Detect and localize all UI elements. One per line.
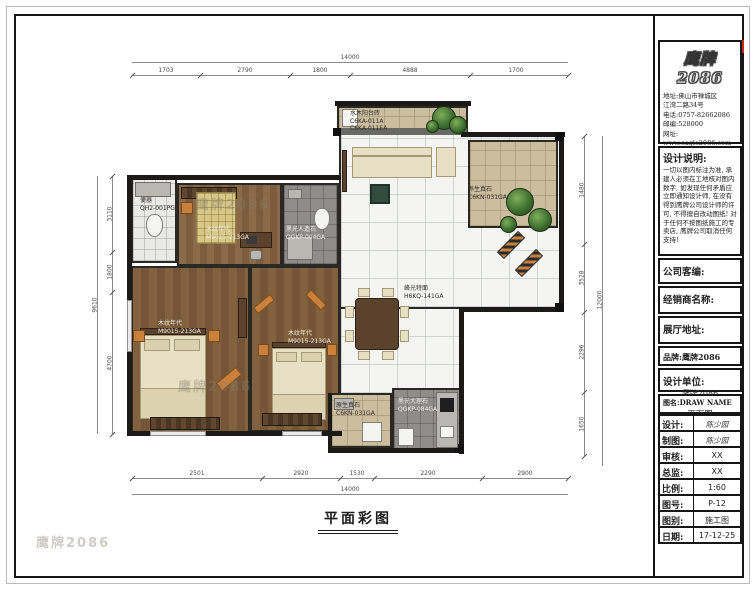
design-notes-box: 设计说明: 一切以图内标注为准, 承建人必须在工地核对图内数字, 如发现任何矛盾…	[658, 146, 742, 256]
tea-table	[370, 184, 390, 204]
material-label: 峰光特面 H6KQ-141GA	[404, 285, 444, 300]
wall	[559, 132, 564, 312]
drawing-sheet: 水木阳台砖 C6KA-011A C6KA-011EA 便器 QH2-001PGA…	[0, 0, 756, 590]
logo-box: 鹰牌2086 地址:佛山市禅城区 江湾二路34号 电话:0757-8266208…	[658, 40, 742, 144]
chair	[345, 330, 354, 342]
chair	[250, 250, 262, 260]
dim-value: 2501	[189, 470, 204, 477]
dim-line	[132, 62, 568, 63]
nightstand	[327, 344, 337, 356]
dim-value: 4700	[107, 355, 114, 370]
wall	[335, 101, 471, 106]
material-label: 黑光大理石 QGKP-084GA	[398, 398, 437, 413]
dim-value: 12000	[597, 290, 604, 309]
design-notes-title: 设计说明:	[663, 150, 737, 165]
table-row: 日期: 17-12-25	[658, 526, 742, 544]
window	[150, 431, 206, 436]
chair	[382, 288, 394, 297]
dim-value: 2296	[579, 344, 586, 359]
dim-value: 4888	[402, 67, 417, 74]
plant-icon	[528, 208, 552, 232]
kitchen-sink	[440, 426, 454, 438]
brand-logo: 鹰牌2086	[663, 48, 737, 87]
table-row: 图别: 施工图	[658, 510, 742, 528]
dealer-name-box: 经销商名称:	[658, 286, 742, 314]
dim-value: 1800	[107, 264, 114, 279]
chair	[382, 351, 394, 360]
table-row: 设计: 陈少园	[658, 414, 742, 432]
dim-value: 9610	[92, 297, 99, 312]
table-row: 总监: XX	[658, 462, 742, 480]
fridge	[398, 428, 414, 446]
wall	[461, 132, 565, 137]
showroom-address-box: 展厅地址:	[658, 316, 742, 344]
table-row: 图号: P-12	[658, 494, 742, 512]
chair	[345, 306, 354, 318]
dim-value: 14000	[340, 54, 359, 61]
sofa	[352, 156, 432, 178]
wall	[328, 393, 332, 451]
contact-info: 地址:佛山市禅城区 江湾二路34号 电话:0757-82662086 邮编:52…	[663, 92, 737, 149]
chair	[358, 288, 370, 297]
plant-icon	[500, 216, 517, 233]
wall	[461, 307, 564, 312]
bathtub	[135, 182, 171, 197]
plant-icon	[449, 116, 467, 134]
dim-value: 2900	[517, 470, 532, 477]
wall	[328, 448, 464, 453]
dim-value: 2920	[293, 470, 308, 477]
pillow	[276, 352, 297, 362]
chair	[400, 330, 409, 342]
washing-machine	[362, 422, 382, 442]
material-label: 木纹年代 M9015-213GA	[158, 320, 201, 335]
material-label: 木纹年代 M9015-213GA	[288, 330, 331, 345]
dim-value: 3528	[579, 270, 586, 285]
dim-value: 1480	[579, 182, 586, 197]
toilet	[146, 214, 163, 237]
drawing-name-box: 图名:DRAW NAME 平面图	[658, 394, 742, 414]
pillow	[301, 352, 322, 362]
tv-cabinet	[342, 150, 347, 192]
plant-icon	[426, 120, 439, 133]
dim-value: 1700	[508, 67, 523, 74]
sink	[288, 189, 302, 199]
dim-value: 14000	[340, 486, 359, 493]
design-unit-box: 设计单位: 鹰牌2086	[658, 368, 742, 392]
watermark: 鹰牌2086	[196, 194, 270, 213]
window	[282, 431, 322, 436]
chair	[400, 306, 409, 318]
dresser	[238, 298, 247, 338]
design-notes-text: 一切以图内标注为准, 承建人必须在工地核对图内数字, 如发现任何矛盾应立即通知设…	[663, 166, 737, 245]
nightstand	[258, 344, 269, 356]
pillow	[144, 339, 170, 351]
column	[555, 303, 564, 312]
column	[333, 128, 341, 136]
title-block-table: 设计: 陈少园 制图: 陈少园 审核: XX 总监: XX 比例: 1:60 图…	[658, 416, 742, 544]
material-label: 水木阳台砖 C6KA-011A C6KA-011EA	[350, 110, 387, 133]
window	[127, 300, 132, 352]
wardrobe	[262, 413, 322, 426]
column	[555, 132, 564, 141]
wall	[459, 307, 464, 454]
wall	[127, 175, 341, 180]
title-block-divider	[653, 14, 655, 576]
dim-value: 1530	[349, 470, 364, 477]
table-row: 制图: 陈少园	[658, 430, 742, 448]
material-label: 原生真石 C6KN-031GA	[336, 402, 375, 417]
stove	[440, 398, 454, 412]
material-label: 便器 QH2-001PGA	[140, 197, 179, 212]
drawing-title: 平面彩图	[318, 508, 398, 534]
dim-line	[132, 478, 568, 479]
dim-value: 2290	[420, 470, 435, 477]
watermark: 鹰牌2086	[36, 532, 110, 551]
watermark: 鹰牌2086	[178, 376, 252, 395]
armchair	[436, 147, 456, 177]
table-row: 比例: 1:60	[658, 478, 742, 496]
table-row: 审核: XX	[658, 446, 742, 464]
nightstand	[208, 330, 220, 342]
material-label: 养生真石 C6KN-031GA	[468, 186, 507, 201]
chair	[358, 351, 370, 360]
nightstand	[133, 330, 145, 342]
wardrobe	[150, 417, 220, 430]
brand-box: 品牌:鹰牌2086	[658, 346, 742, 366]
nightstand	[181, 202, 193, 214]
material-label: 木纹年代 M9015-213GA	[206, 226, 249, 241]
sofa-back	[352, 147, 432, 156]
dim-value: 2790	[237, 67, 252, 74]
pillow	[174, 339, 200, 351]
dim-line	[132, 494, 568, 495]
dining-table	[355, 298, 399, 350]
dim-value: 3110	[107, 206, 114, 221]
material-label: 黑光人造石 QGKP-004GA	[286, 226, 325, 241]
dim-value: 1650	[579, 416, 586, 431]
dim-value: 1800	[312, 67, 327, 74]
dim-value: 1703	[158, 67, 173, 74]
company-code-box: 公司客编:	[658, 258, 742, 284]
